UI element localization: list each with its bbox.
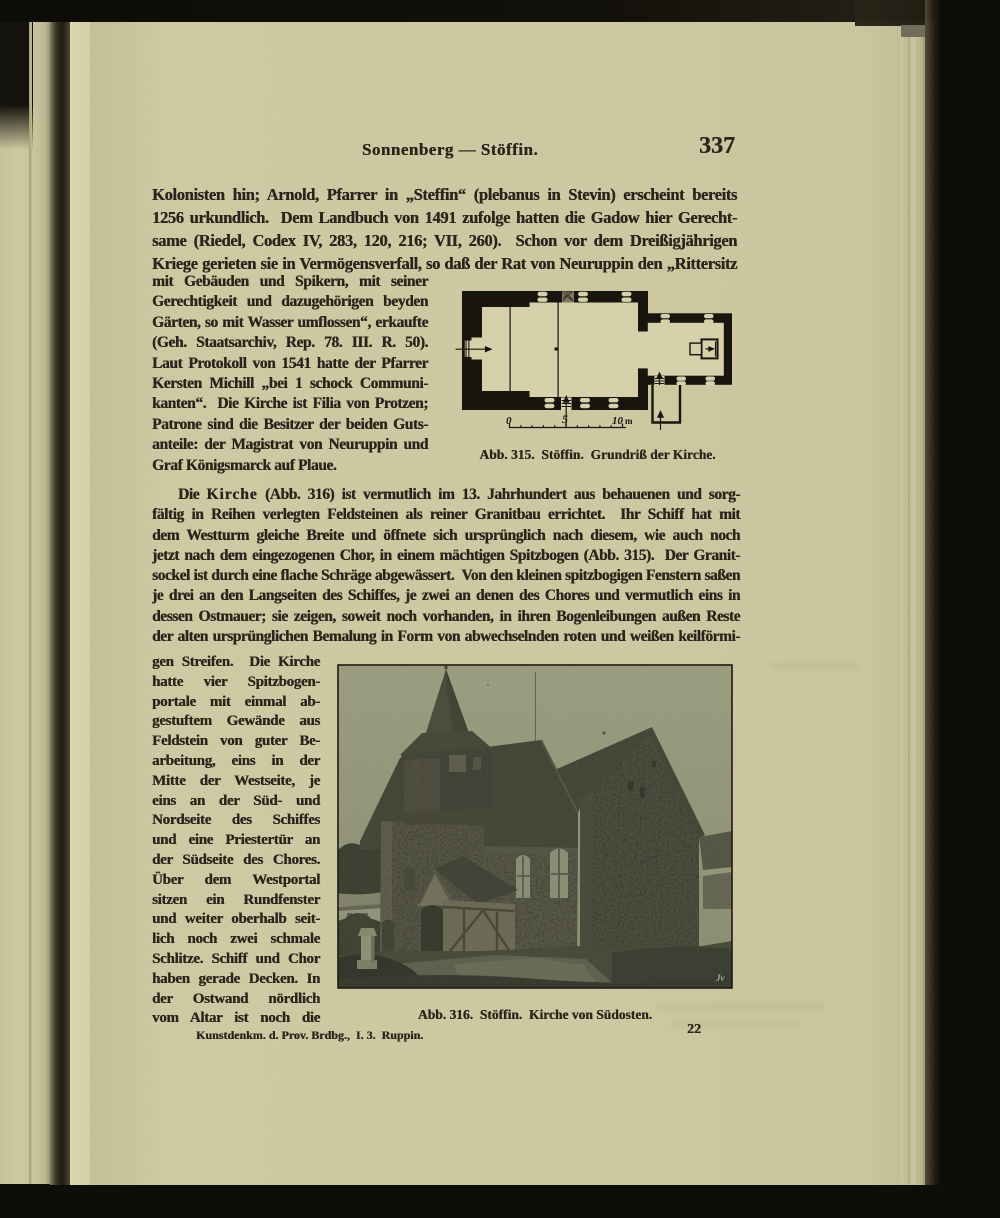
svg-text:0: 0	[506, 415, 512, 427]
svg-text:m: m	[625, 416, 633, 426]
svg-text:5: 5	[562, 412, 568, 426]
svg-text:10: 10	[612, 415, 624, 427]
